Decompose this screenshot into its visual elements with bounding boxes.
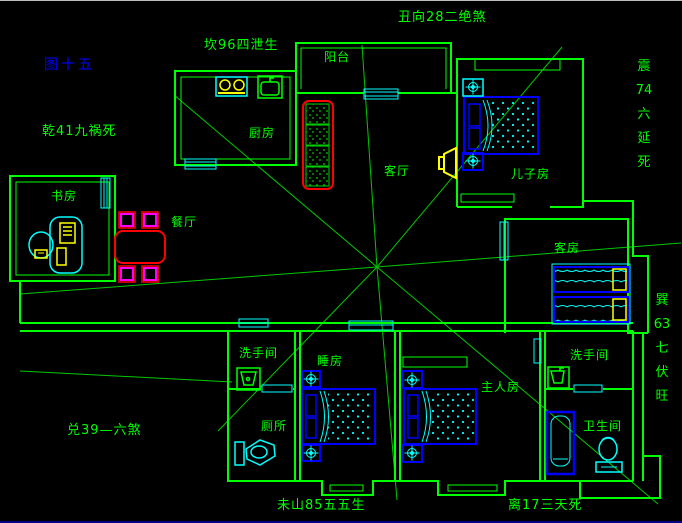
toilet-left xyxy=(235,440,275,465)
sofa xyxy=(303,101,333,189)
room-label-guest-room: 客房 xyxy=(554,242,580,255)
balcony-door xyxy=(364,89,398,99)
washroom-right-sink xyxy=(548,367,569,388)
annotation-bottom-mountain: 未山85五五生 xyxy=(277,499,366,513)
room-label-bathroom: 卫生间 xyxy=(583,420,622,433)
nightstand xyxy=(403,445,422,462)
master-bed xyxy=(403,371,476,462)
nightstand xyxy=(302,445,320,461)
toilet-door xyxy=(262,385,292,392)
toilet-right xyxy=(596,438,622,473)
bedroom-bed xyxy=(302,371,375,461)
dining-set xyxy=(115,212,165,282)
tv-speaker xyxy=(439,148,456,178)
room-label-balcony: 阳台 xyxy=(324,51,350,64)
room-label-dining: 餐厅 xyxy=(171,216,197,229)
study-desk-set xyxy=(29,217,82,273)
annotation-northwest: 乾41九祸死 xyxy=(42,125,117,139)
guest-room-window xyxy=(500,222,508,260)
nightstand xyxy=(463,153,483,170)
annotation-north: 坎96四泄生 xyxy=(204,39,279,53)
floorplan-drawing xyxy=(0,1,682,523)
bathroom-door xyxy=(574,385,602,392)
computer xyxy=(57,223,75,265)
annotation-south: 离17三天死 xyxy=(508,499,583,513)
kitchen-sink xyxy=(258,76,282,98)
washroom-left-sink xyxy=(237,368,260,390)
room-label-bedroom: 睡房 xyxy=(317,355,343,368)
room-label-master-room: 主人房 xyxy=(481,381,520,394)
stove xyxy=(216,77,247,96)
cad-floorplan-canvas: 图十五 丑向28二绝煞 坎96四泄生 乾41九祸死 兑39—六煞 震 74 六 … xyxy=(0,0,682,523)
annotation-west: 兑39—六煞 xyxy=(67,424,142,438)
room-label-study: 书房 xyxy=(51,190,77,203)
room-label-son-room: 儿子房 xyxy=(511,168,550,181)
room-label-washroom-right: 洗手间 xyxy=(570,349,609,362)
washroom-left-window xyxy=(239,319,268,327)
nightstand xyxy=(302,371,320,387)
annotation-top-direction: 丑向28二绝煞 xyxy=(398,11,487,25)
annotation-east-vertical: 震 74 六 延 死 xyxy=(633,55,655,175)
room-label-kitchen: 厨房 xyxy=(249,127,275,140)
guest-room-twin-beds xyxy=(552,264,630,324)
room-label-toilet: 厕所 xyxy=(261,420,287,433)
drawing-title: 图十五 xyxy=(44,54,95,74)
room-label-living: 客厅 xyxy=(384,165,410,178)
nightstand xyxy=(403,371,422,388)
nightstand xyxy=(463,79,483,96)
annotation-southeast-vertical: 巽 63 七 伏 旺 xyxy=(651,289,673,409)
son-room-bed xyxy=(463,79,538,170)
room-label-washroom-left: 洗手间 xyxy=(239,347,278,360)
